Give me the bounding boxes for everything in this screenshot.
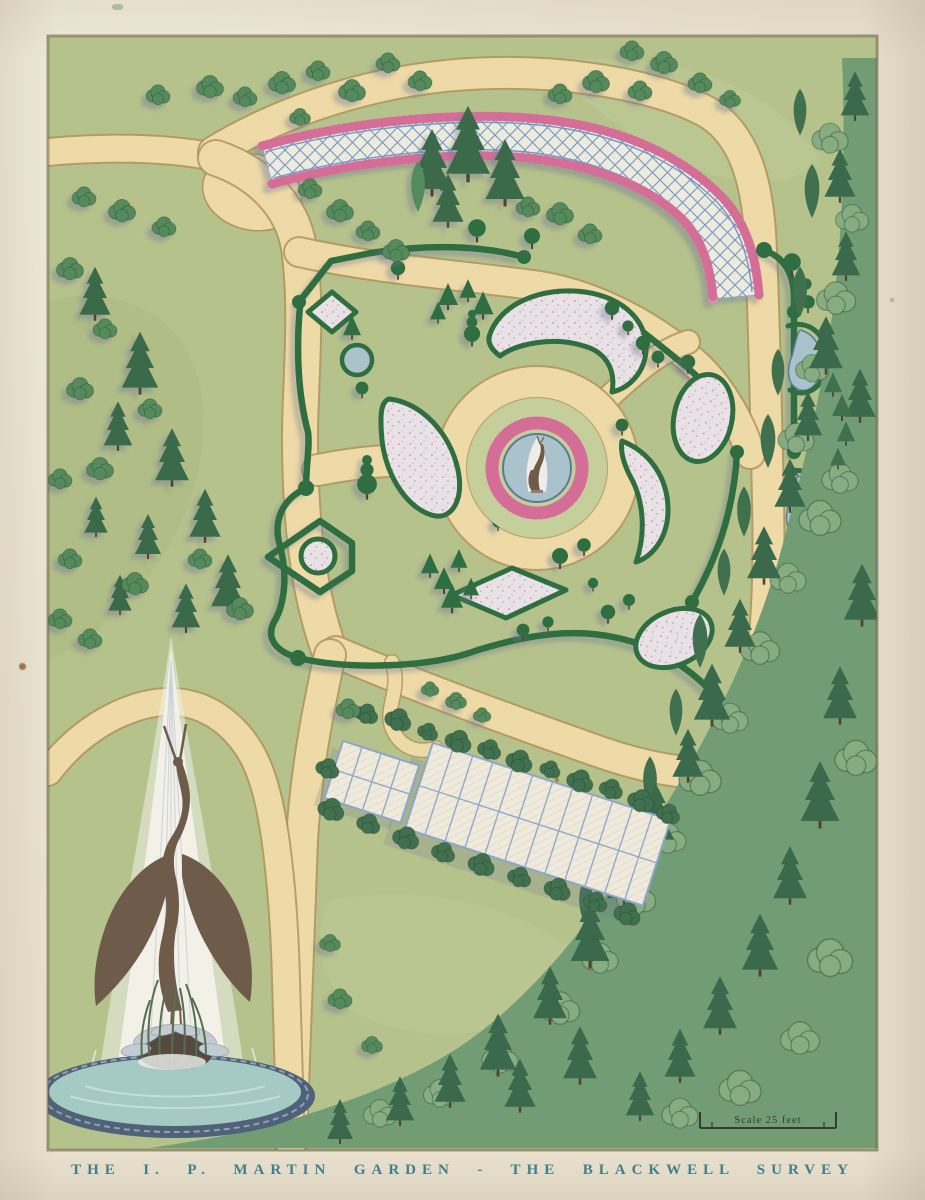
foxing-speck [555, 778, 559, 782]
garden-plan-painting: Scale 25 feet [48, 36, 877, 1150]
scale-label: Scale 25 feet [734, 1115, 801, 1126]
central-pool [467, 398, 607, 538]
caption: THE I. P. MARTIN GARDEN - THE BLACKWELL … [48, 1152, 877, 1188]
foxing-speck [19, 663, 26, 670]
paint-dab [112, 4, 123, 10]
small-garden-pool [342, 345, 372, 375]
artwork-page: { "artwork": { "caption": "THE I. P. MAR… [0, 0, 925, 1200]
foxing-speck [890, 298, 894, 302]
garden-plan-canvas: Scale 25 feet [48, 36, 877, 1150]
